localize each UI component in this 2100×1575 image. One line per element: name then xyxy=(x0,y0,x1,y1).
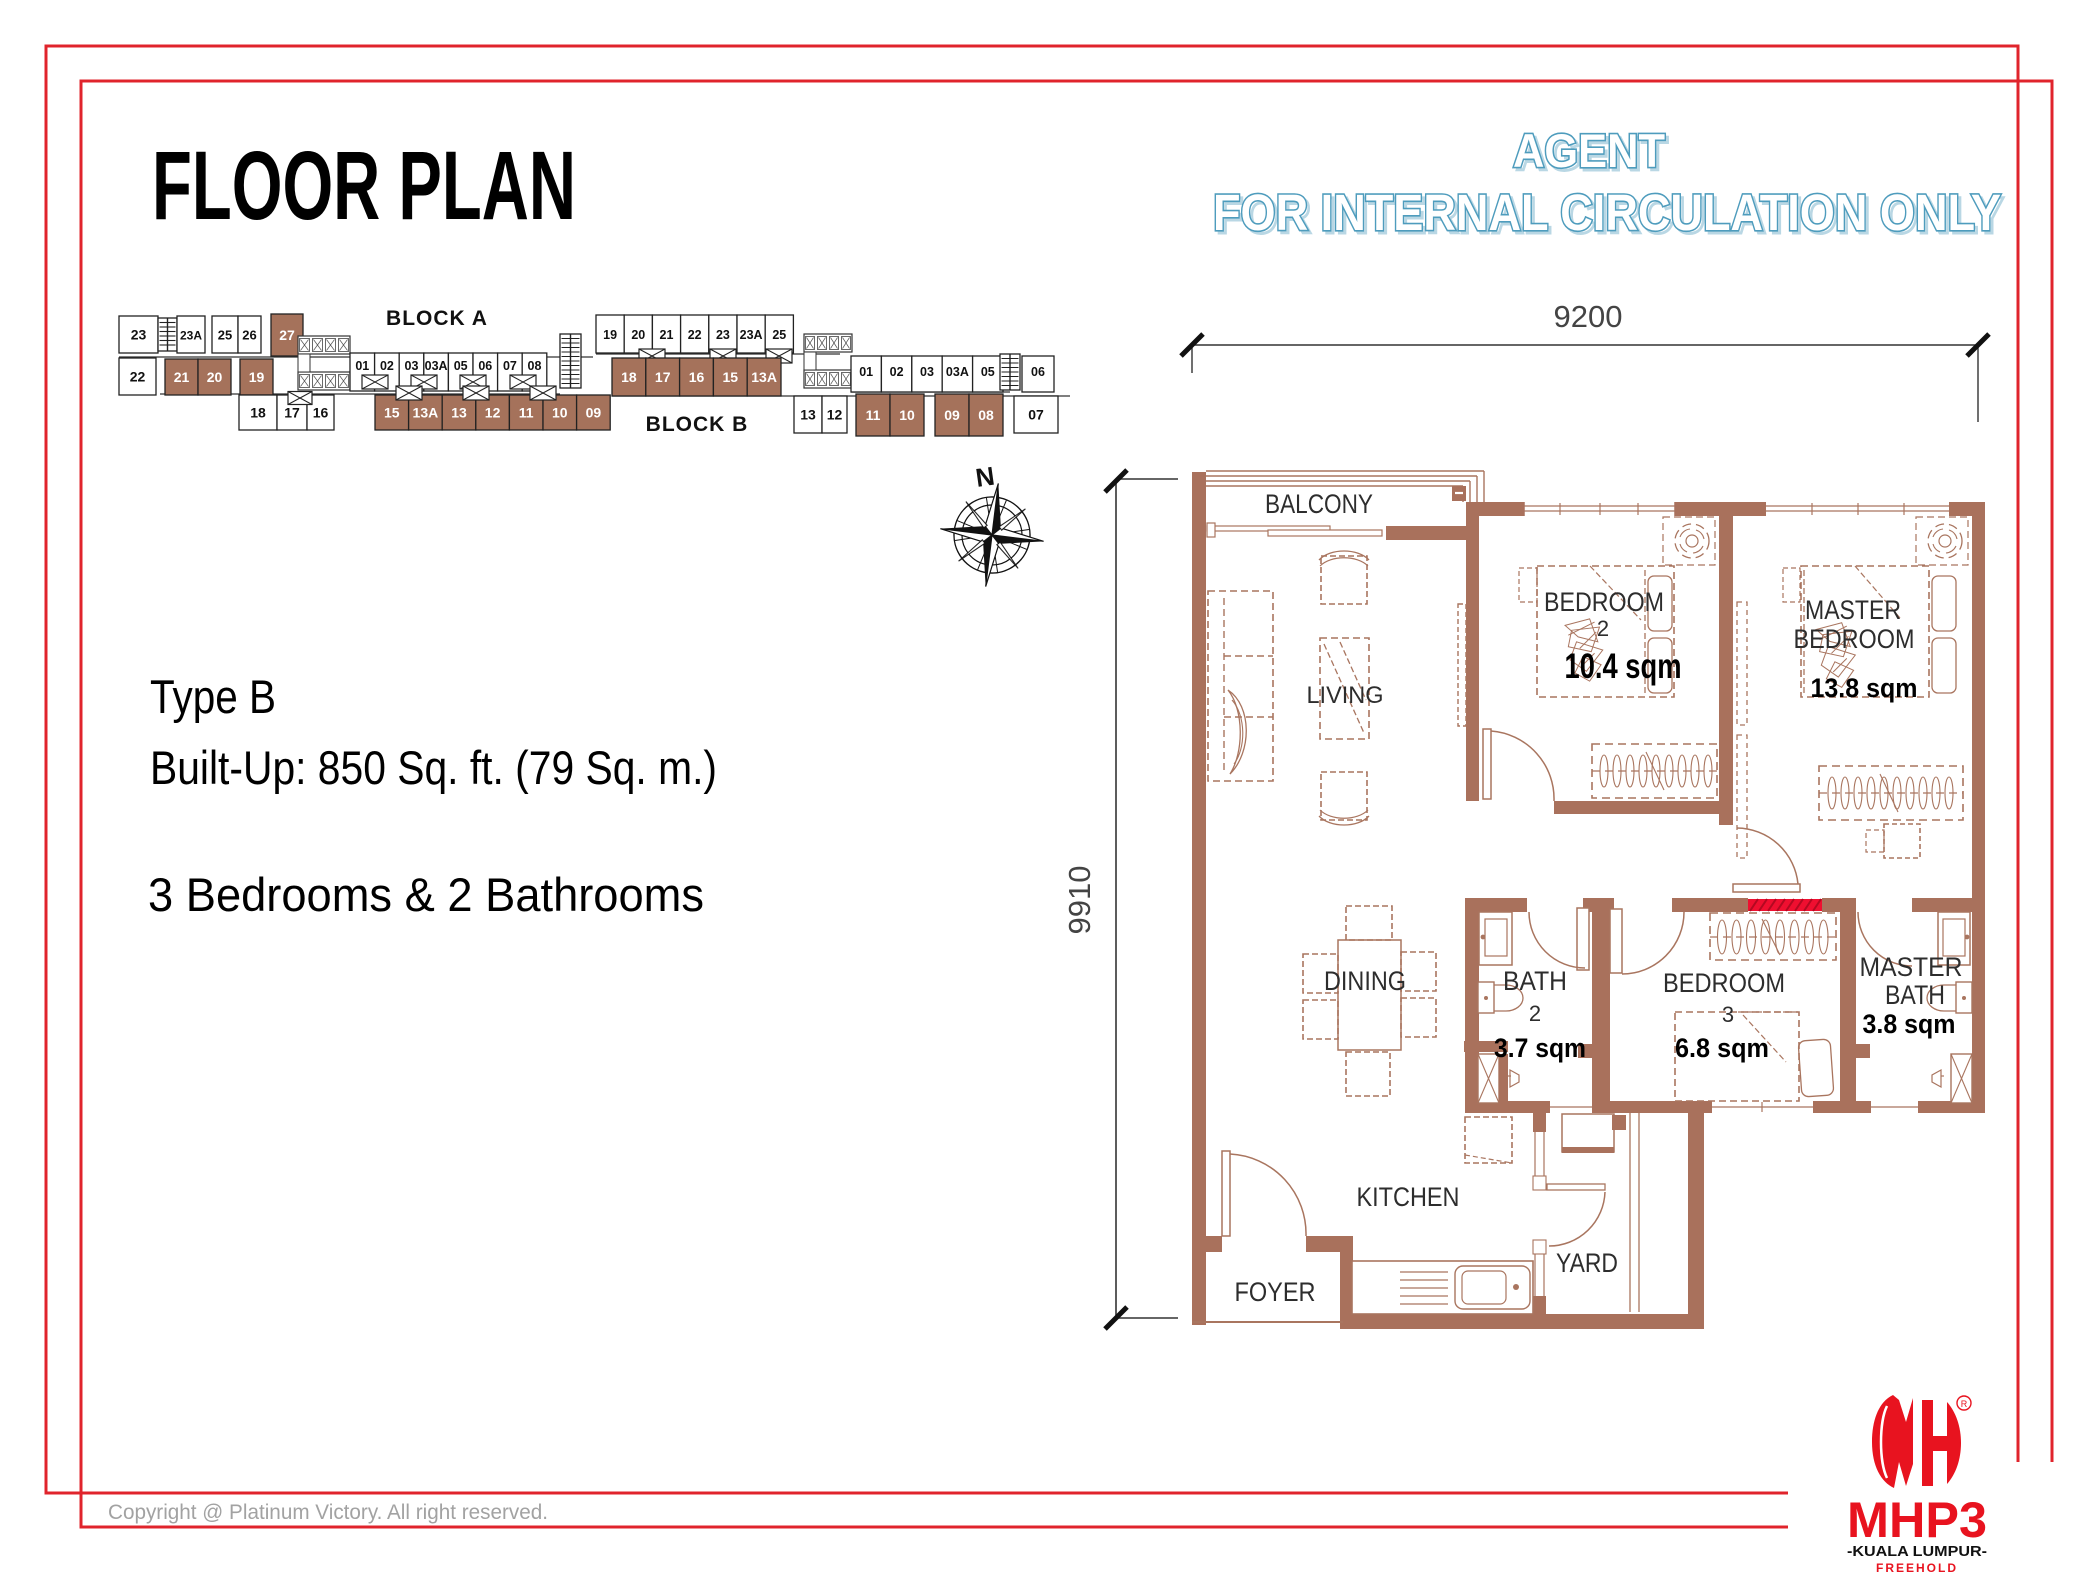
svg-text:AGENT: AGENT xyxy=(1513,124,1665,177)
svg-text:03: 03 xyxy=(405,359,419,373)
svg-text:23: 23 xyxy=(131,327,147,343)
svg-text:07: 07 xyxy=(503,359,517,373)
svg-text:2: 2 xyxy=(1597,616,1609,641)
svg-text:12: 12 xyxy=(827,407,843,423)
svg-text:06: 06 xyxy=(478,359,492,373)
svg-text:Copyright @ Platinum Victory.: Copyright @ Platinum Victory. All right … xyxy=(108,1501,548,1524)
svg-text:13.8 sqm: 13.8 sqm xyxy=(1811,673,1918,703)
svg-text:13A: 13A xyxy=(413,405,439,421)
svg-text:23: 23 xyxy=(716,328,730,342)
svg-text:18: 18 xyxy=(621,369,637,385)
svg-text:10: 10 xyxy=(899,407,915,423)
svg-text:23A: 23A xyxy=(180,329,202,343)
svg-text:03: 03 xyxy=(920,365,934,379)
svg-text:21: 21 xyxy=(660,328,674,342)
svg-text:BATH: BATH xyxy=(1503,966,1567,996)
svg-text:BEDROOM: BEDROOM xyxy=(1544,587,1664,617)
svg-text:05: 05 xyxy=(981,365,995,379)
svg-text:08: 08 xyxy=(528,359,542,373)
svg-text:KITCHEN: KITCHEN xyxy=(1357,1182,1460,1212)
svg-text:10: 10 xyxy=(552,405,568,421)
svg-text:19: 19 xyxy=(249,369,265,385)
svg-text:6.8 sqm: 6.8 sqm xyxy=(1675,1033,1769,1063)
svg-text:02: 02 xyxy=(380,359,394,373)
svg-text:01: 01 xyxy=(355,359,369,373)
svg-text:Type B: Type B xyxy=(150,670,276,723)
svg-text:-KUALA LUMPUR-: -KUALA LUMPUR- xyxy=(1847,1543,1987,1560)
svg-text:07: 07 xyxy=(1028,407,1044,423)
svg-text:18: 18 xyxy=(250,405,266,421)
svg-text:2: 2 xyxy=(1529,1001,1541,1026)
svg-text:MHP3: MHP3 xyxy=(1847,1492,1987,1548)
svg-text:R: R xyxy=(1961,1399,1968,1409)
svg-text:27: 27 xyxy=(279,327,295,343)
svg-text:BEDROOM: BEDROOM xyxy=(1663,968,1785,998)
svg-text:YARD: YARD xyxy=(1556,1248,1618,1278)
svg-text:17: 17 xyxy=(284,405,300,421)
svg-text:08: 08 xyxy=(978,407,994,423)
svg-text:FOR INTERNAL CIRCULATION ONLY: FOR INTERNAL CIRCULATION ONLY xyxy=(1213,184,2001,241)
svg-text:3.7 sqm: 3.7 sqm xyxy=(1494,1033,1586,1063)
svg-text:15: 15 xyxy=(384,405,400,421)
svg-text:BLOCK B: BLOCK B xyxy=(646,413,749,436)
svg-text:20: 20 xyxy=(631,328,645,342)
svg-text:09: 09 xyxy=(586,405,602,421)
svg-text:17: 17 xyxy=(655,369,671,385)
svg-text:3: 3 xyxy=(1722,1002,1734,1027)
svg-text:13: 13 xyxy=(800,407,816,423)
svg-text:Built-Up: 850 Sq. ft. (79 Sq.: Built-Up: 850 Sq. ft. (79 Sq. m.) xyxy=(150,741,717,794)
svg-text:09: 09 xyxy=(944,407,960,423)
svg-text:05: 05 xyxy=(454,359,468,373)
svg-text:02: 02 xyxy=(890,365,904,379)
svg-text:FOYER: FOYER xyxy=(1235,1277,1316,1307)
svg-text:23A: 23A xyxy=(740,328,763,342)
svg-text:12: 12 xyxy=(485,405,501,421)
svg-text:BALCONY: BALCONY xyxy=(1265,489,1373,519)
svg-text:3.8 sqm: 3.8 sqm xyxy=(1863,1009,1956,1039)
svg-text:FREEHOLD: FREEHOLD xyxy=(1876,1561,1958,1575)
svg-text:20: 20 xyxy=(207,369,223,385)
svg-text:21: 21 xyxy=(174,369,190,385)
svg-text:22: 22 xyxy=(130,369,146,385)
svg-text:13A: 13A xyxy=(751,369,777,385)
svg-text:25: 25 xyxy=(772,328,786,342)
svg-text:26: 26 xyxy=(242,328,256,343)
svg-text:BATH: BATH xyxy=(1885,980,1945,1010)
svg-text:9910: 9910 xyxy=(1062,866,1097,935)
svg-text:06: 06 xyxy=(1031,365,1045,379)
svg-text:FLOOR PLAN: FLOOR PLAN xyxy=(152,131,576,240)
svg-text:LIVING: LIVING xyxy=(1307,682,1384,709)
svg-text:9200: 9200 xyxy=(1554,299,1623,334)
svg-text:11: 11 xyxy=(866,407,881,423)
svg-text:16: 16 xyxy=(313,405,329,421)
svg-text:15: 15 xyxy=(723,369,739,385)
svg-text:03A: 03A xyxy=(946,365,969,379)
svg-text:16: 16 xyxy=(689,369,705,385)
svg-text:19: 19 xyxy=(603,328,617,342)
svg-text:DINING: DINING xyxy=(1324,966,1406,996)
svg-text:BEDROOM: BEDROOM xyxy=(1794,624,1915,654)
svg-text:MASTER: MASTER xyxy=(1860,952,1963,982)
svg-text:10.4 sqm: 10.4 sqm xyxy=(1565,647,1682,686)
svg-text:3 Bedrooms & 2 Bathrooms: 3 Bedrooms & 2 Bathrooms xyxy=(148,868,704,921)
svg-text:01: 01 xyxy=(859,365,873,379)
svg-text:11: 11 xyxy=(519,405,534,421)
svg-text:BLOCK A: BLOCK A xyxy=(386,307,488,330)
svg-text:03A: 03A xyxy=(425,359,448,373)
svg-text:MASTER: MASTER xyxy=(1805,595,1901,625)
svg-text:13: 13 xyxy=(451,405,467,421)
svg-text:25: 25 xyxy=(218,328,232,343)
svg-text:22: 22 xyxy=(688,328,702,342)
